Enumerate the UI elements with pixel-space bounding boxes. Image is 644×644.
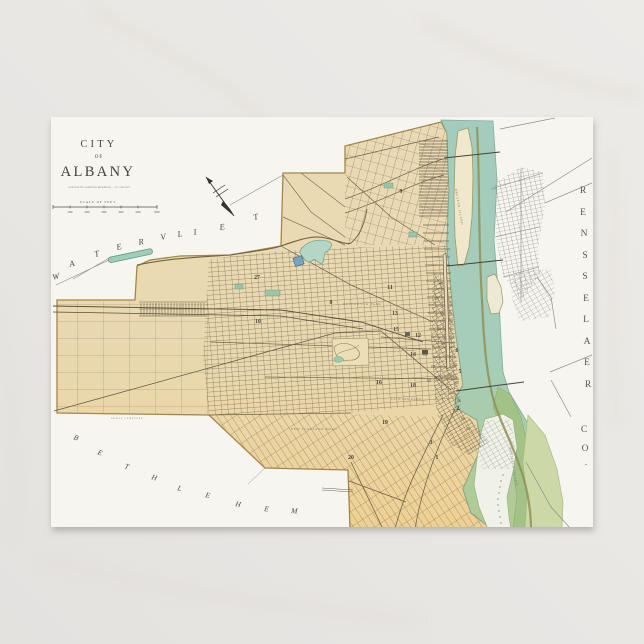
svg-text:1: 1 [436, 455, 439, 461]
svg-text:L: L [583, 315, 589, 325]
svg-text:19: 19 [382, 420, 388, 426]
svg-text:11: 11 [387, 285, 393, 291]
svg-text:1000: 1000 [67, 211, 73, 214]
svg-text:6: 6 [456, 348, 459, 354]
svg-text:S: S [582, 251, 587, 261]
svg-text:SCALE OF FEET: SCALE OF FEET [80, 200, 116, 204]
svg-text:5: 5 [459, 369, 462, 375]
svg-text:13: 13 [392, 311, 398, 317]
svg-text:RURAL CEMETERY: RURAL CEMETERY [111, 417, 144, 420]
svg-text:OF: OF [95, 155, 103, 160]
svg-text:2: 2 [457, 406, 460, 412]
svg-text:4000: 4000 [118, 211, 124, 214]
svg-text:N: N [581, 229, 588, 239]
svg-text:S: S [582, 272, 587, 282]
svg-text:CLINTON PARK: CLINTON PARK [391, 397, 422, 401]
svg-text:10: 10 [255, 319, 261, 325]
svg-text:20: 20 [348, 455, 354, 461]
svg-text:5000: 5000 [135, 211, 141, 214]
svg-text:8: 8 [330, 300, 333, 306]
svg-text:12: 12 [415, 333, 421, 339]
svg-text:R: R [585, 380, 592, 390]
svg-text:14: 14 [410, 352, 416, 358]
svg-text:BEVERWYCK PARK: BEVERWYCK PARK [343, 302, 382, 306]
svg-text:E: E [583, 294, 589, 304]
svg-text:A: A [584, 337, 591, 347]
svg-text:16: 16 [376, 380, 382, 386]
svg-text:27: 27 [254, 275, 260, 281]
svg-text:ALBANY: ALBANY [61, 164, 136, 180]
svg-text:R: R [580, 186, 587, 196]
svg-text:3000: 3000 [101, 211, 107, 214]
svg-text:C: C [581, 425, 587, 435]
svg-text:O: O [582, 444, 589, 454]
svg-text:9: 9 [400, 189, 403, 195]
svg-text:18: 18 [410, 383, 416, 389]
svg-text:6000: 6000 [154, 211, 160, 214]
svg-text:E: E [580, 208, 586, 218]
svg-text:.: . [585, 458, 587, 468]
svg-text:E: E [584, 358, 590, 368]
svg-text:2000: 2000 [84, 211, 90, 214]
svg-text:CITY: CITY [81, 139, 118, 150]
svg-text:NEW SCOTLAND ROAD: NEW SCOTLAND ROAD [291, 427, 337, 431]
svg-text:15: 15 [393, 327, 399, 333]
svg-text:COPYRIGHT SAMPSON MURDOCK + CO: COPYRIGHT SAMPSON MURDOCK + CO ALBANY [68, 186, 130, 189]
